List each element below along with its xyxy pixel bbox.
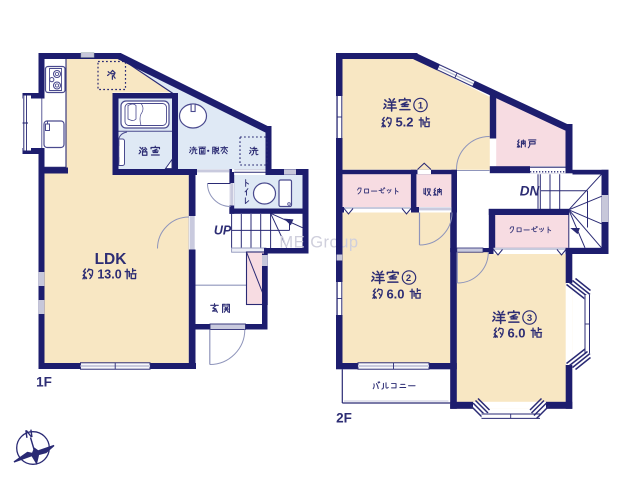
svg-text:UP: UP <box>214 224 232 238</box>
svg-text:DN: DN <box>520 184 540 199</box>
svg-text:N: N <box>24 428 34 441</box>
svg-text:2F: 2F <box>336 411 352 426</box>
svg-text:5.2: 5.2 <box>395 115 413 130</box>
svg-text:6.0: 6.0 <box>386 287 404 302</box>
svg-text:13.0: 13.0 <box>97 268 121 282</box>
svg-text:1: 1 <box>418 101 424 112</box>
svg-text:2: 2 <box>406 273 411 284</box>
svg-text:3: 3 <box>527 313 532 324</box>
svg-text:6.0: 6.0 <box>507 326 525 341</box>
svg-text:LDK: LDK <box>95 251 128 268</box>
svg-text:1F: 1F <box>36 375 52 390</box>
svg-text:ME Group: ME Group <box>279 234 358 252</box>
